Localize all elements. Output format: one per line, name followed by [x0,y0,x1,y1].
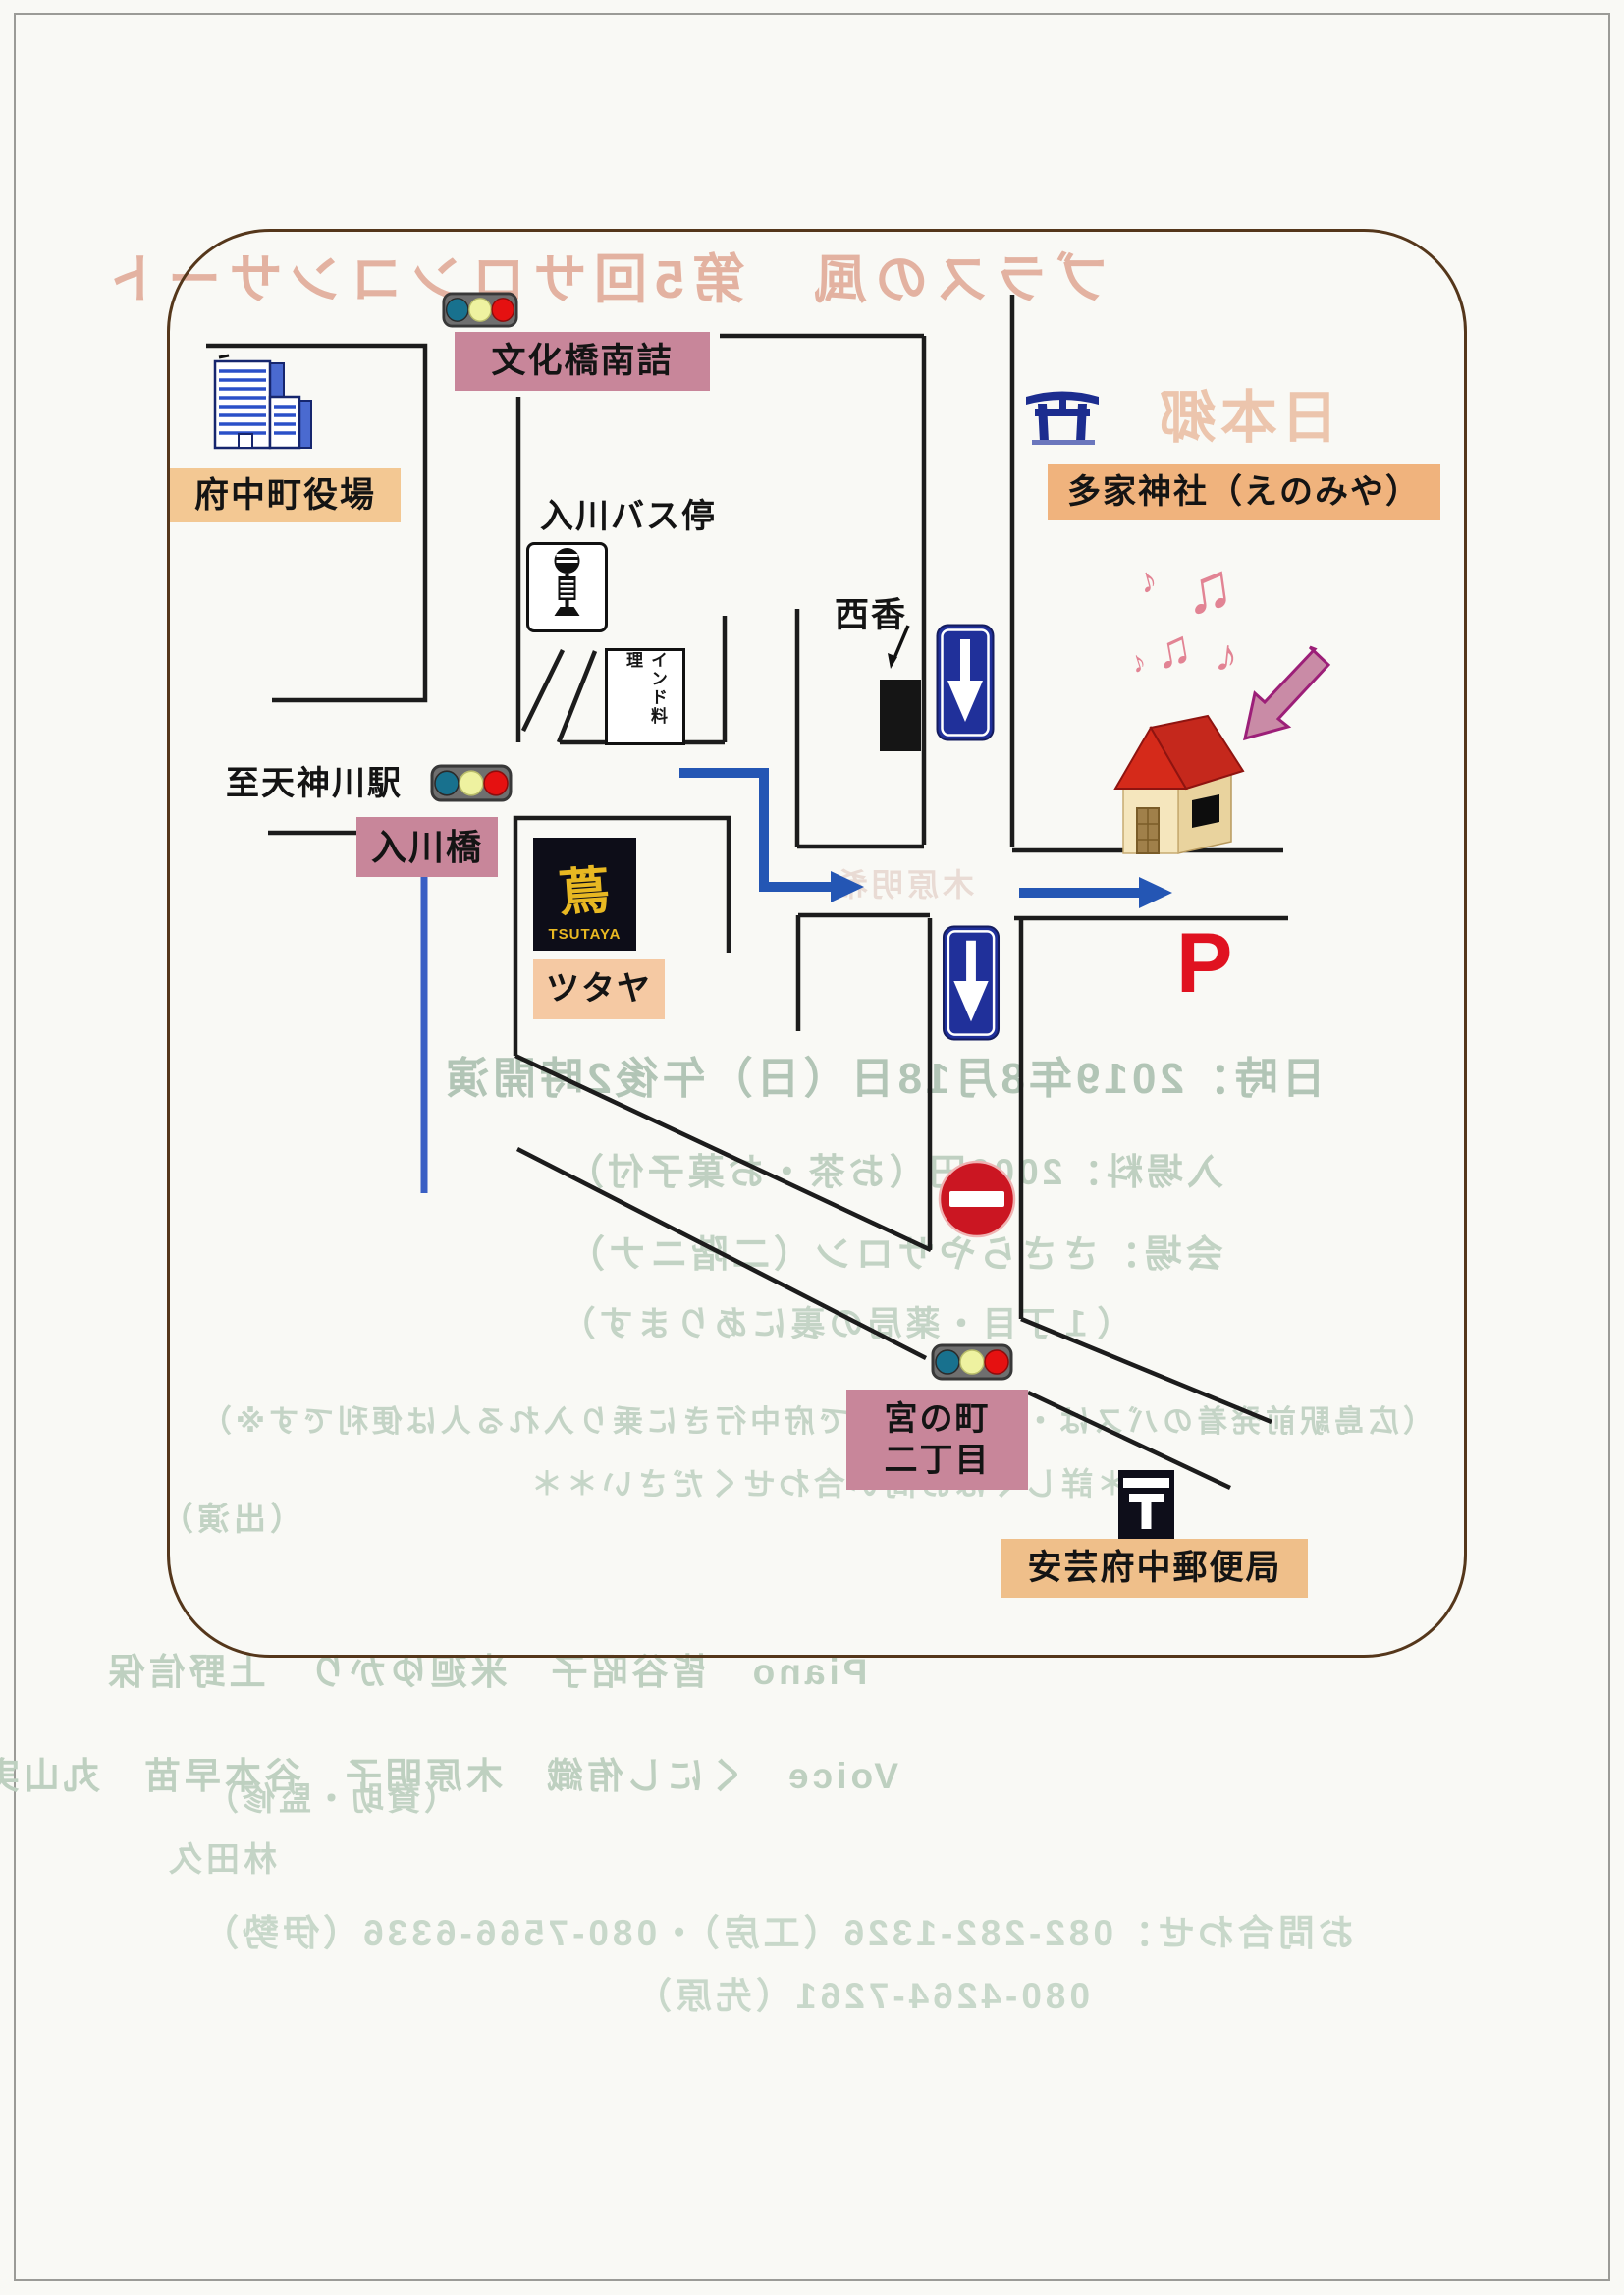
no-entry-sign-icon [937,1159,1017,1239]
label-text: 文化橋南詰 [491,340,673,383]
bus-stop-sign-box [526,542,608,632]
label-text-line2: 二丁目 [885,1440,991,1482]
tsutaya-logo-box: 蔦 TSUTAYA [533,838,636,951]
nishika-pointer-arrow-icon [881,623,914,676]
traffic-light-icon [931,1343,1013,1381]
destination-arrow-icon [1229,640,1335,758]
post-office-icon [1118,1470,1174,1539]
parking-mark: P [1176,921,1232,1006]
label-text: ツタヤ [546,968,652,1011]
music-note-icon: ♫ [1178,547,1238,629]
office-building-icon [209,354,315,456]
label-irikawa-bridge: 入川橋 [356,817,498,877]
one-way-sign-icon [936,624,995,741]
label-text: 入川橋 [371,825,483,869]
label-text: 安芸府中郵便局 [1027,1547,1281,1590]
tsutaya-kanji-glyph: 蔦 [558,865,613,920]
bus-stop-pole-icon [532,545,602,624]
indian-restaurant-box: インド料理 [605,648,685,745]
label-to-tenjingawa-station: 至天神川駅 [226,756,403,804]
one-way-sign-icon [941,925,1001,1041]
nishika-building-block [880,680,921,751]
label-aki-fuchu-post-office: 安芸府中郵便局 [1001,1539,1308,1598]
label-fuchu-town-hall: 府中町役場 [170,468,401,522]
label-miyanomachi-2chome: 宮の町 二丁目 [846,1390,1028,1490]
route-arrowhead-1 [831,871,864,902]
label-taka-shrine: 多家神社（えのみや） [1048,464,1440,520]
venue-house-icon [1108,702,1245,859]
arrow-shape [1245,647,1328,738]
route-arrowhead-2 [1139,877,1172,908]
tsutaya-logo-text: TSUTAYA [549,926,622,943]
label-text-line1: 宮の町 [885,1398,991,1441]
label-text: 多家神社（えのみや） [1067,471,1421,514]
route-line [679,773,1139,893]
traffic-light-icon [430,764,513,802]
label-tsutaya: ツタヤ [533,959,665,1019]
traffic-light-icon [442,292,518,328]
label-irikawa-bus-stop: 入川バス停 [540,489,717,537]
indian-restaurant-text: インド料理 [621,651,670,742]
road-network [0,0,1624,2295]
scanned-map-flyer: ブラスの風 第5回サロンコンサート 日本郷 木原明希 日時：2019年8月18日… [0,0,1624,2295]
label-text: 府中町役場 [194,474,376,518]
label-bunkabashi-minamizume: 文化橋南詰 [455,332,710,391]
torii-gate-icon [1024,381,1101,448]
